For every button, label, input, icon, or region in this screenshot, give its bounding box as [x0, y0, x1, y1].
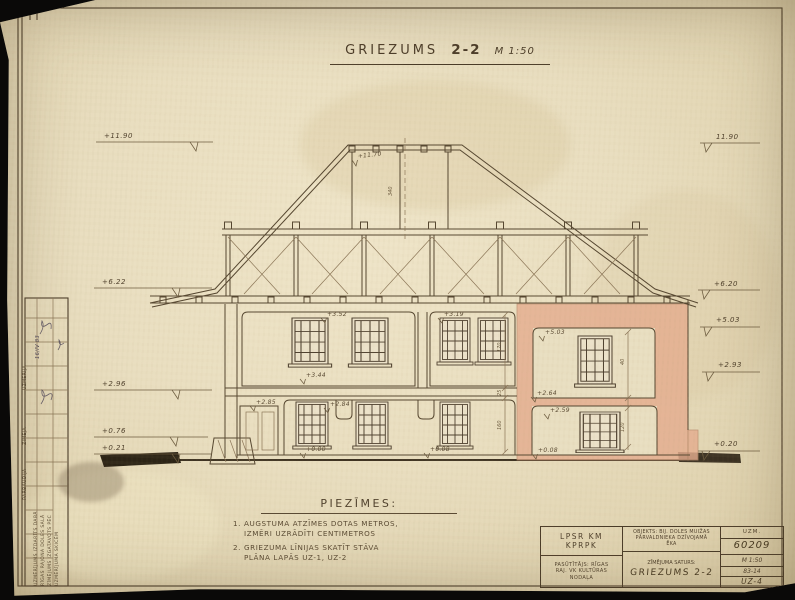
photo-of-drawing: 170 25 160 40 120 340 +11.90 +6.22 +2.96…	[0, 0, 795, 600]
sheet-number: UZ-4	[741, 577, 763, 586]
stamp-note-1: UZMĒRĪJUMS IZDARĪTS DABĀ	[34, 511, 39, 586]
sheet-number-cell: UZ-4	[721, 577, 783, 587]
roof-braces	[228, 237, 636, 294]
org-cell: LPSR KM KPRPK	[541, 527, 623, 556]
code-value: 83-14	[743, 568, 760, 576]
notes-block: PIEZĪMES: 1. AUGSTUMA ATZĪMES DOTAS METR…	[233, 497, 473, 562]
code-cell: 83-14	[721, 567, 783, 577]
interior-mark: +3.52	[327, 311, 347, 318]
elevation-mark: +5.03	[716, 316, 740, 324]
signature-strip: UZMĒRĪJA ZĪMĒJA PĀRBAUDĪJA 16/IV 83 UZMĒ…	[25, 298, 68, 586]
dim-value: 170	[497, 342, 503, 352]
dim-value: 120	[620, 422, 626, 432]
uzm-label: UZM.	[743, 529, 761, 536]
client-cell: PASŪTĪTĀJS: RĪGAS RAJ. VK KULTŪRAS NODAĻ…	[541, 556, 623, 587]
drawing-sheet: 170 25 160 40 120 340 +11.90 +6.22 +2.96…	[0, 0, 795, 600]
dim-value: 40	[620, 359, 626, 365]
org-line2: KPRPK	[566, 541, 598, 550]
stamp-note-3: ZĪMĒJUMS IZGATAVOTS PĒC	[48, 515, 53, 586]
stamp-note-2: RĪGAS RAJONA DOLES SALĀ	[41, 514, 46, 586]
title-label: GRIEZUMS	[345, 43, 438, 58]
stamp-note-4: UZMĒRĪJUMA SKICĒM	[55, 532, 60, 586]
elevation-mark: +6.20	[714, 280, 738, 288]
dim-value: 340	[388, 186, 394, 196]
title-block: LPSR KM KPRPK PASŪTĪTĀJS: RĪGAS RAJ. VK …	[540, 526, 784, 588]
uzm-number-cell: 60209	[721, 539, 783, 555]
org-line1: LPSR KM	[560, 532, 603, 541]
content-value: GRIEZUMS 2-2	[629, 568, 713, 579]
stamp-header-1: UZMĒRĪJA	[23, 365, 28, 390]
note-1-cont: IZMĒRI UZRĀDĪTI CENTIMETROS	[244, 529, 473, 538]
roof-structure	[150, 138, 698, 307]
interior-mark: +0.08	[538, 447, 558, 454]
elevation-mark: +6.22	[102, 278, 126, 286]
interior-mark: +0.08	[430, 446, 450, 453]
interior-mark: +2.85	[256, 399, 276, 406]
note-2-cont: PLĀNA LAPĀS UZ-1, UZ-2	[244, 553, 473, 562]
title-scale: M 1:50	[495, 46, 535, 57]
stamp-header-2: ZĪMĒJA	[23, 427, 28, 445]
elevation-mark: +0.76	[102, 427, 126, 435]
ceiling-joists	[160, 297, 670, 303]
elevation-mark: +0.20	[714, 440, 738, 448]
elevation-mark: +0.21	[102, 444, 126, 452]
interior-mark: +0.00	[306, 446, 326, 453]
interior-mark: +3.19	[444, 311, 464, 318]
stamp-header-3: PĀRBAUDĪJA	[23, 469, 28, 501]
note-2: 2. GRIEZUMA LĪNIJAS SKATĪT STĀVA	[233, 543, 473, 552]
client-line3: NODAĻA	[570, 575, 593, 581]
content-cell: ZĪMĒJUMA SATURS: GRIEZUMS 2-2	[623, 552, 721, 587]
scale-cell: M 1:50	[721, 555, 783, 567]
dim-value: 25	[497, 390, 503, 396]
dim-value: 160	[497, 420, 503, 430]
interior-mark: +5.03	[545, 329, 565, 336]
stamp-date: 16/IV 83	[35, 335, 41, 359]
elevation-leaders-right	[698, 143, 760, 460]
content-label: ZĪMĒJUMA SATURS:	[647, 560, 695, 566]
ridge-elevation: +11.70	[357, 151, 382, 160]
object-line3: ĒKA	[666, 542, 676, 548]
uzm-number: 60209	[734, 540, 771, 553]
notes-heading: PIEZĪMES:	[261, 497, 457, 514]
scale-value: M 1:50	[742, 557, 763, 565]
elevation-mark: +2.93	[718, 361, 742, 369]
interior-mark: +3.44	[306, 372, 326, 379]
interior-mark: +2.84	[330, 401, 350, 408]
interior-mark: +2.64	[537, 390, 557, 397]
uzm-label-cell: UZM.	[721, 527, 783, 539]
elevation-mark: +2.96	[102, 380, 126, 388]
title-section-number: 2-2	[451, 42, 481, 58]
interior-mark: +2.59	[550, 407, 570, 414]
object-cell: OBJEKTS: BIJ. DOLES MUIŽAS PĀRVALDNIEKA …	[623, 527, 721, 552]
drawing-title: GRIEZUMS 2-2 M 1:50	[330, 42, 550, 65]
elevation-mark: 11.90	[716, 133, 739, 141]
elevation-mark: +11.90	[104, 132, 133, 140]
note-1: 1. AUGSTUMA ATZĪMES DOTAS METROS,	[233, 519, 473, 528]
